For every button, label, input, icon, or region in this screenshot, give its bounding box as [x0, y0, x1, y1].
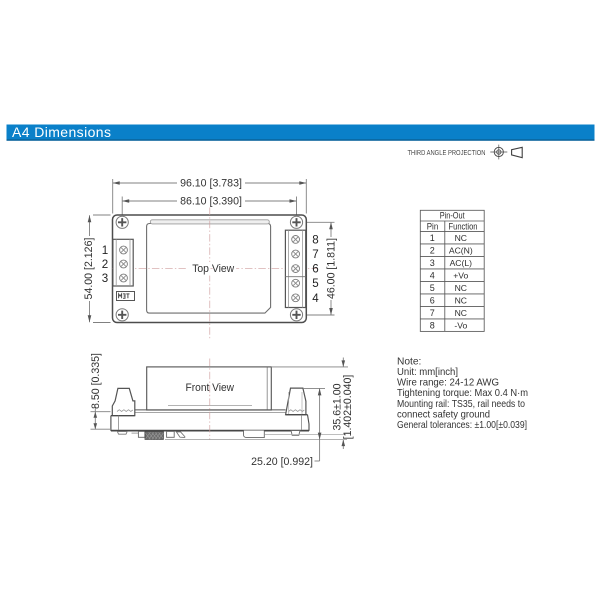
svg-text:2: 2 — [430, 245, 435, 255]
svg-text:5: 5 — [312, 277, 318, 290]
svg-text:86.10 [3.390]: 86.10 [3.390] — [180, 196, 242, 208]
svg-text:6: 6 — [312, 263, 318, 276]
svg-text:Tightening torque: Max 0.4 N·m: Tightening torque: Max 0.4 N·m — [397, 388, 528, 399]
svg-text:96.10 [3.783]: 96.10 [3.783] — [180, 178, 242, 190]
svg-text:5: 5 — [430, 283, 435, 293]
svg-text:7: 7 — [312, 248, 318, 261]
svg-text:Function: Function — [449, 221, 478, 231]
svg-text:4: 4 — [312, 292, 319, 305]
svg-text:AC(N): AC(N) — [449, 245, 473, 255]
svg-text:8.50 [0.335]: 8.50 [0.335] — [90, 353, 102, 409]
svg-text:54.00 [2.126]: 54.00 [2.126] — [83, 238, 95, 300]
svg-text:NC: NC — [455, 233, 467, 243]
svg-text:3: 3 — [430, 258, 435, 268]
svg-text:4: 4 — [430, 270, 435, 280]
svg-text:Top View: Top View — [192, 263, 234, 275]
svg-text:Note:: Note: — [397, 356, 421, 367]
svg-text:connect safety ground: connect safety ground — [397, 410, 490, 421]
svg-text:8: 8 — [430, 320, 435, 330]
svg-text:Mounting rail: TS35, rail need: Mounting rail: TS35, rail needs to — [397, 399, 525, 410]
svg-text:2: 2 — [102, 258, 108, 271]
svg-text:A4 Dimensions: A4 Dimensions — [12, 124, 111, 140]
svg-text:3: 3 — [102, 272, 108, 285]
svg-text:THIRD ANGLE PROJECTION: THIRD ANGLE PROJECTION — [408, 148, 486, 157]
svg-text:Front View: Front View — [186, 382, 235, 394]
svg-text:46.00 [1.811]: 46.00 [1.811] — [325, 238, 337, 299]
svg-text:General tolerances: ±1.00[±0.0: General tolerances: ±1.00[±0.039] — [397, 420, 527, 431]
svg-text:+Vo: +Vo — [453, 270, 468, 280]
svg-text:Unit: mm[inch]: Unit: mm[inch] — [397, 367, 458, 378]
svg-text:[1.402±0.040]: [1.402±0.040] — [342, 375, 354, 440]
svg-text:7: 7 — [430, 308, 435, 318]
svg-text:AC(L): AC(L) — [450, 258, 473, 268]
svg-text:NC: NC — [455, 308, 467, 318]
svg-text:Wire range: 24-12 AWG: Wire range: 24-12 AWG — [397, 377, 499, 388]
svg-text:1: 1 — [102, 244, 108, 257]
svg-text:25.20 [0.992]: 25.20 [0.992] — [251, 456, 313, 468]
svg-text:NC: NC — [455, 295, 467, 305]
svg-text:1: 1 — [430, 233, 435, 243]
svg-text:8: 8 — [312, 233, 318, 246]
svg-text:6: 6 — [430, 295, 435, 305]
svg-text:-Vo: -Vo — [454, 320, 467, 330]
svg-text:Pin: Pin — [427, 221, 439, 231]
svg-text:NC: NC — [455, 283, 467, 293]
svg-text:Pin-Out: Pin-Out — [440, 210, 465, 220]
